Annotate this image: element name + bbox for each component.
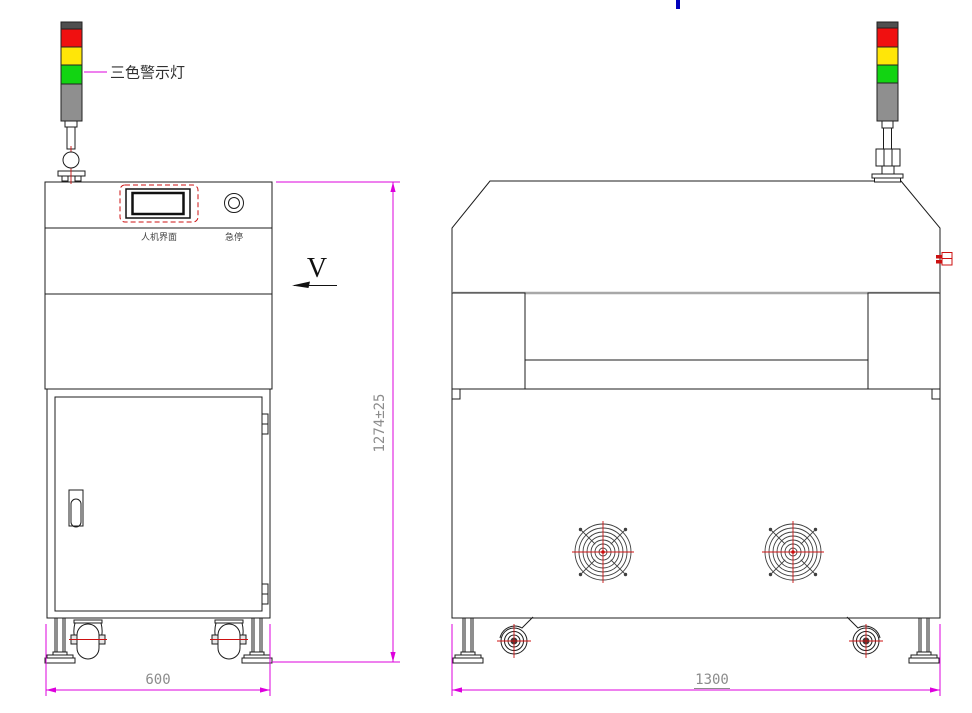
- fan-grille-icon: [572, 521, 634, 583]
- base-tab-right: [932, 389, 940, 399]
- warning-light-tower: [58, 22, 85, 184]
- cad-drawing-canvas: 人机界面 急停: [0, 0, 972, 713]
- dimension-1300-value: 1300: [695, 672, 729, 688]
- door-handle-icon: [69, 490, 83, 527]
- left-arrowhead-icon: [292, 282, 310, 289]
- leveling-foot-icon: [909, 618, 939, 663]
- base-tab-left: [452, 389, 460, 399]
- tower-green-lamp: [61, 65, 82, 84]
- machine-drawing: 人机界面 急停: [0, 0, 972, 713]
- side-view: 人机界面 急停: [45, 22, 272, 696]
- front-view: 1300: [452, 22, 952, 696]
- door-hinge-top-icon: [262, 414, 268, 434]
- door-hinge-bottom-icon: [262, 584, 268, 604]
- tower-cap: [877, 22, 898, 28]
- tower-yellow-lamp: [61, 47, 82, 65]
- leveling-foot-icon: [453, 618, 483, 663]
- dimension-height: 1274±25: [272, 182, 400, 662]
- tower-body: [61, 84, 82, 121]
- view-direction-label: V: [307, 253, 327, 284]
- warning-light-label: 三色警示灯: [110, 64, 185, 82]
- cabinet-door: [55, 397, 262, 611]
- dimension-600-value: 600: [145, 672, 170, 688]
- left-column: [452, 293, 525, 389]
- right-column: [868, 293, 940, 389]
- tower-body: [877, 83, 898, 121]
- caster-wheel-icon: [847, 617, 883, 658]
- hmi-label: 人机界面: [141, 231, 177, 243]
- fan-grille-icon: [762, 521, 824, 583]
- tower-yellow-lamp: [877, 47, 898, 65]
- view-direction-arrow: V: [292, 253, 337, 288]
- top-blue-mark: [676, 0, 680, 9]
- estop-label: 急停: [225, 231, 243, 243]
- front-base-cabinet: [452, 389, 940, 618]
- hmi-screen-icon: [120, 185, 198, 222]
- warning-light-tower: [872, 22, 903, 182]
- caster-wheel-icon: [210, 620, 248, 659]
- caster-wheel-icon: [69, 620, 107, 659]
- tower-green-lamp: [877, 65, 898, 83]
- dimension-height-value: 1274±25: [372, 393, 388, 452]
- tower-red-lamp: [877, 28, 898, 47]
- tower-cap: [61, 22, 82, 29]
- tower-red-lamp: [61, 29, 82, 47]
- machine-hood: [452, 181, 940, 293]
- caster-wheel-icon: [497, 617, 533, 658]
